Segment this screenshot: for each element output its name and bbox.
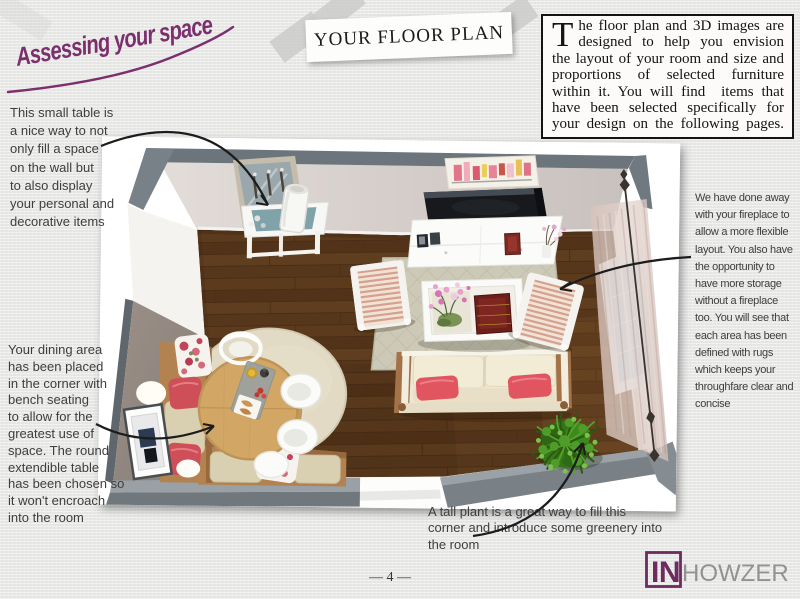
svg-text:IN: IN bbox=[651, 556, 680, 589]
svg-text:HOWZER: HOWZER bbox=[682, 560, 789, 587]
